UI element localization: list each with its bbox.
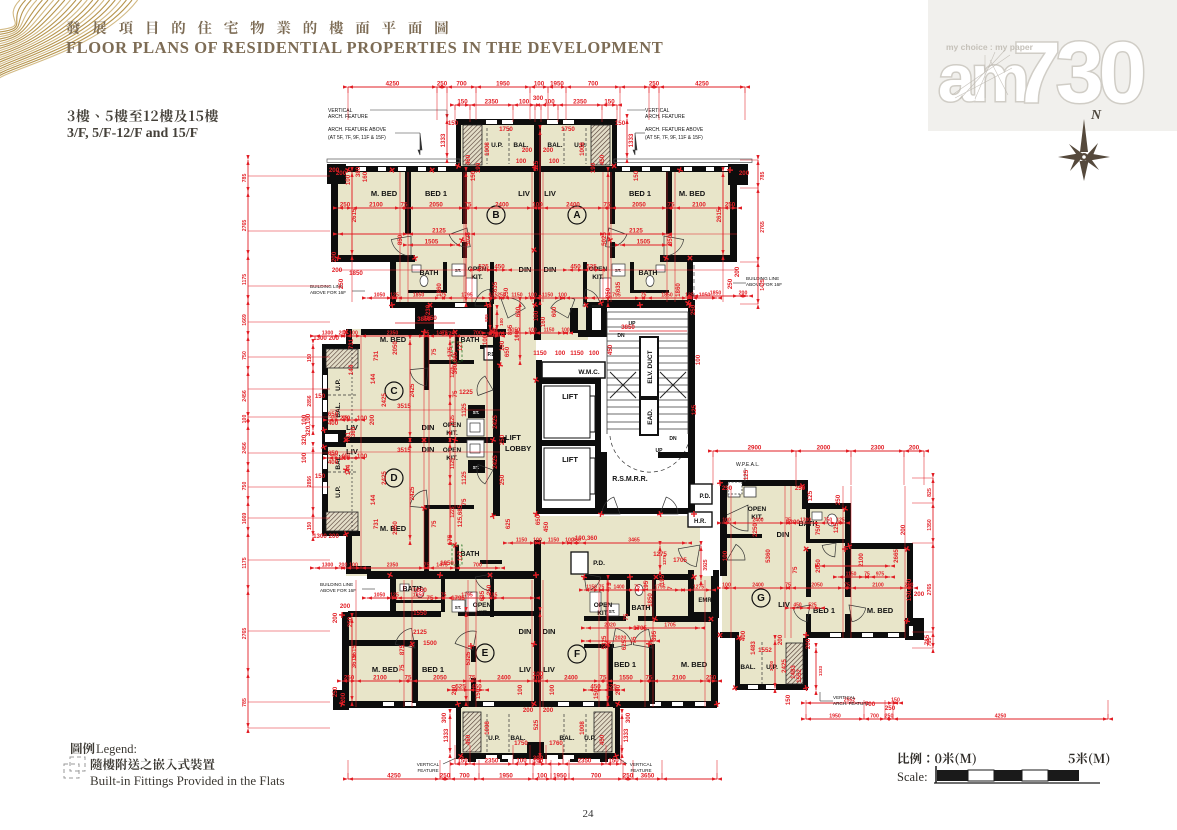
svg-text:380: 380 <box>355 166 362 177</box>
svg-text:125: 125 <box>807 490 814 501</box>
svg-text:150: 150 <box>315 473 326 480</box>
svg-text:400: 400 <box>328 459 339 466</box>
svg-text:FLOOR PLANS OF RESIDENTIAL PRO: FLOOR PLANS OF RESIDENTIAL PROPERTIES IN… <box>66 38 663 57</box>
svg-text:731: 731 <box>373 518 380 529</box>
svg-text:2350: 2350 <box>387 563 399 569</box>
svg-text:125: 125 <box>390 593 399 599</box>
svg-text:100: 100 <box>528 293 537 299</box>
svg-text:EMR: EMR <box>698 598 712 604</box>
svg-text:1125: 1125 <box>461 403 468 417</box>
svg-text:M. BED: M. BED <box>681 660 708 669</box>
svg-text:450: 450 <box>543 521 550 532</box>
svg-text:1008: 1008 <box>484 142 491 156</box>
svg-text:2125: 2125 <box>432 228 446 235</box>
svg-text:1300: 1300 <box>800 518 811 524</box>
svg-text:1950: 1950 <box>553 773 567 780</box>
svg-text:(AT 5F, 7F, 9F, 11F & 15F): (AT 5F, 7F, 9F, 11F & 15F) <box>328 135 386 141</box>
svg-text:100: 100 <box>537 773 548 780</box>
svg-text:200: 200 <box>734 266 741 277</box>
svg-text:360,685: 360,685 <box>452 351 459 374</box>
svg-text:200: 200 <box>914 591 925 598</box>
svg-text:1950: 1950 <box>499 773 513 780</box>
svg-text:100: 100 <box>516 758 527 765</box>
svg-text:1552: 1552 <box>758 647 772 654</box>
svg-text:200: 200 <box>615 684 622 695</box>
svg-text:975: 975 <box>876 572 885 578</box>
svg-text:600: 600 <box>551 306 558 317</box>
svg-text:2000: 2000 <box>817 445 831 452</box>
svg-text:OPEN: OPEN <box>594 602 613 609</box>
svg-text:ABOVE FOR 16F: ABOVE FOR 16F <box>310 290 346 295</box>
svg-text:200: 200 <box>339 563 348 569</box>
svg-text:75: 75 <box>844 583 850 589</box>
svg-text:625: 625 <box>621 639 628 650</box>
svg-text:ELV. DUCT: ELV. DUCT <box>647 350 654 383</box>
svg-text:FEATURE: FEATURE <box>417 768 438 773</box>
svg-text:2900: 2900 <box>748 445 762 452</box>
svg-text:200: 200 <box>340 692 347 703</box>
svg-text:200: 200 <box>369 414 376 425</box>
svg-text:1300 200: 1300 200 <box>313 533 339 540</box>
svg-text:300: 300 <box>625 712 632 723</box>
svg-text:1850: 1850 <box>413 293 425 299</box>
svg-text:731: 731 <box>373 350 380 361</box>
svg-text:750: 750 <box>242 482 248 491</box>
svg-text:DIN: DIN <box>422 445 435 454</box>
svg-text:75: 75 <box>431 520 438 527</box>
svg-text:100: 100 <box>722 518 731 524</box>
svg-text:200: 200 <box>340 415 351 422</box>
svg-text:LIV: LIV <box>518 189 530 198</box>
svg-text:W.M.C.: W.M.C. <box>578 369 599 376</box>
svg-text:3850: 3850 <box>621 324 635 331</box>
svg-text:2350: 2350 <box>485 758 499 765</box>
svg-text:2425: 2425 <box>381 393 388 407</box>
svg-text:150: 150 <box>315 393 326 400</box>
svg-text:2100: 2100 <box>373 675 387 682</box>
svg-text:650: 650 <box>504 346 511 357</box>
svg-text:KIT.: KIT. <box>471 274 483 281</box>
svg-text:2100: 2100 <box>872 583 884 589</box>
svg-text:5325: 5325 <box>465 651 472 665</box>
svg-text:127: 127 <box>457 550 464 561</box>
svg-text:KIT.: KIT. <box>446 430 458 437</box>
svg-text:LIV: LIV <box>543 665 555 674</box>
svg-text:144: 144 <box>345 464 352 475</box>
svg-text:DIN: DIN <box>543 627 556 636</box>
svg-text:700: 700 <box>459 773 470 780</box>
svg-text:Scale:: Scale: <box>897 770 928 784</box>
svg-text:2400: 2400 <box>752 518 763 524</box>
svg-text:150: 150 <box>470 170 477 181</box>
svg-text:525: 525 <box>586 264 597 271</box>
svg-text:650: 650 <box>535 514 542 525</box>
svg-text:G: G <box>757 593 765 604</box>
svg-text:3925: 3925 <box>703 559 709 570</box>
svg-text:250: 250 <box>503 287 510 298</box>
svg-text:525: 525 <box>808 603 817 609</box>
svg-text:2050: 2050 <box>433 675 447 682</box>
svg-text:ABOVE FOR 16F: ABOVE FOR 16F <box>320 588 356 593</box>
svg-text:3615: 3615 <box>351 645 358 659</box>
svg-text:1150: 1150 <box>548 538 559 544</box>
svg-text:2425: 2425 <box>409 383 416 397</box>
svg-text:BATH: BATH <box>639 270 658 277</box>
svg-text:750: 750 <box>815 524 822 535</box>
svg-text:250: 250 <box>725 202 736 209</box>
svg-text:OPEN: OPEN <box>443 447 462 454</box>
svg-text:24: 24 <box>583 808 595 820</box>
svg-text:250: 250 <box>340 202 351 209</box>
svg-text:ST.: ST. <box>609 609 616 614</box>
svg-text:1008: 1008 <box>579 142 586 156</box>
svg-text:200: 200 <box>522 147 533 154</box>
svg-text:2350: 2350 <box>485 99 499 106</box>
svg-text:250: 250 <box>835 494 842 505</box>
svg-text:1550: 1550 <box>619 675 633 682</box>
svg-text:75: 75 <box>401 202 408 209</box>
svg-text:100: 100 <box>695 354 702 365</box>
svg-text:A: A <box>573 210 580 221</box>
svg-text:100: 100 <box>589 350 600 357</box>
svg-text:2425: 2425 <box>781 659 788 673</box>
svg-text:1150: 1150 <box>544 328 555 334</box>
svg-text:VERTICAL: VERTICAL <box>833 695 856 700</box>
svg-text:2100: 2100 <box>369 202 383 209</box>
svg-text:785: 785 <box>760 172 766 181</box>
svg-text:100: 100 <box>301 452 308 463</box>
svg-text:100: 100 <box>544 99 555 106</box>
svg-text:125: 125 <box>833 522 840 533</box>
svg-text:LIFT: LIFT <box>562 392 578 401</box>
svg-text:1008: 1008 <box>484 721 491 735</box>
svg-text:75: 75 <box>606 582 613 589</box>
svg-text:1550: 1550 <box>413 610 427 617</box>
svg-text:100,360: 100,360 <box>575 535 598 542</box>
svg-text:F: F <box>574 649 580 660</box>
svg-text:75: 75 <box>634 585 640 591</box>
svg-text:2100: 2100 <box>672 675 686 682</box>
svg-text:150: 150 <box>457 758 468 765</box>
svg-text:KIT.: KIT. <box>592 274 604 281</box>
svg-text:1050: 1050 <box>699 293 711 299</box>
svg-text:2050: 2050 <box>815 559 822 573</box>
svg-text:3515: 3515 <box>397 403 411 410</box>
svg-text:700: 700 <box>591 773 602 780</box>
svg-text:B: B <box>492 210 499 221</box>
svg-text:395: 395 <box>651 630 658 641</box>
svg-text:75: 75 <box>631 636 638 643</box>
svg-text:DIN: DIN <box>422 423 435 432</box>
svg-text:DIN: DIN <box>777 530 790 539</box>
svg-text:1750: 1750 <box>514 740 528 747</box>
svg-text:200: 200 <box>909 445 920 452</box>
svg-text:144: 144 <box>370 494 377 505</box>
svg-text:400: 400 <box>740 630 747 641</box>
svg-text:BED 1: BED 1 <box>425 189 447 198</box>
svg-text:250: 250 <box>623 773 634 780</box>
svg-text:100: 100 <box>349 563 358 569</box>
svg-text:75: 75 <box>668 202 675 209</box>
svg-text:200: 200 <box>805 638 812 649</box>
svg-text:200: 200 <box>739 291 748 297</box>
svg-text:700: 700 <box>492 331 503 338</box>
svg-text:650: 650 <box>328 450 339 457</box>
svg-text:Built-in Fittings Provided in: Built-in Fittings Provided in the Flats <box>90 773 285 788</box>
svg-text:2400: 2400 <box>752 583 764 589</box>
svg-text:150: 150 <box>593 688 600 699</box>
svg-text:400: 400 <box>328 420 339 427</box>
svg-text:LIFT: LIFT <box>505 433 521 442</box>
svg-text:2050: 2050 <box>429 202 443 209</box>
svg-text:2765: 2765 <box>242 220 248 232</box>
svg-text:75: 75 <box>399 664 406 671</box>
svg-text:1008: 1008 <box>579 721 586 735</box>
svg-text:2856: 2856 <box>307 395 313 406</box>
svg-text:DIN: DIN <box>544 265 557 274</box>
svg-text:100: 100 <box>482 334 489 345</box>
svg-text:150,150: 150,150 <box>906 578 913 601</box>
svg-text:1150: 1150 <box>542 293 553 299</box>
svg-text:250: 250 <box>690 304 697 315</box>
svg-text:250: 250 <box>499 434 506 445</box>
svg-text:850: 850 <box>397 234 404 245</box>
svg-text:D: D <box>390 473 397 484</box>
svg-text:200: 200 <box>777 634 784 645</box>
svg-text:75: 75 <box>864 572 870 578</box>
svg-text:1333: 1333 <box>443 728 450 742</box>
svg-text:1500: 1500 <box>423 640 437 647</box>
svg-text:BED 1: BED 1 <box>422 665 444 674</box>
svg-text:1150: 1150 <box>533 350 547 357</box>
svg-text:U.P.: U.P. <box>488 735 500 742</box>
svg-text:E: E <box>482 648 489 659</box>
svg-text:KIT.: KIT. <box>476 610 488 617</box>
svg-text:100: 100 <box>533 671 544 678</box>
svg-text:200: 200 <box>900 524 907 535</box>
svg-text:1860: 1860 <box>436 283 443 297</box>
svg-text:100: 100 <box>558 293 567 299</box>
svg-text:ARCH. FEATURE: ARCH. FEATURE <box>645 114 686 120</box>
svg-text:2050: 2050 <box>392 521 399 535</box>
svg-text:1505: 1505 <box>425 239 439 246</box>
svg-text:1050: 1050 <box>374 593 386 599</box>
svg-text:5025: 5025 <box>465 232 472 246</box>
svg-text:150: 150 <box>633 170 640 181</box>
svg-text:1333: 1333 <box>818 665 823 676</box>
svg-text:5025: 5025 <box>601 232 608 246</box>
svg-text:125: 125 <box>691 404 698 415</box>
svg-text:150: 150 <box>785 694 792 705</box>
svg-text:75: 75 <box>441 593 447 599</box>
svg-text:150: 150 <box>615 120 626 127</box>
svg-text:250: 250 <box>347 616 354 627</box>
svg-text:700: 700 <box>870 714 879 720</box>
svg-text:LIV: LIV <box>519 665 531 674</box>
svg-text:750: 750 <box>824 518 833 524</box>
svg-text:525: 525 <box>533 160 540 171</box>
svg-text:ARCH. FEATURE: ARCH. FEATURE <box>328 114 369 120</box>
svg-text:635: 635 <box>492 281 499 292</box>
svg-text:R.S.M.R.R.: R.S.M.R.R. <box>612 476 647 483</box>
svg-text:2300: 2300 <box>871 445 885 452</box>
svg-text:700: 700 <box>588 81 599 88</box>
svg-text:1150: 1150 <box>570 350 584 357</box>
svg-text:195: 195 <box>659 574 666 585</box>
svg-text:230: 230 <box>425 304 432 315</box>
svg-text:160: 160 <box>540 316 547 327</box>
svg-text:ST.: ST. <box>615 268 622 273</box>
svg-text:2615: 2615 <box>716 208 723 222</box>
svg-text:1150: 1150 <box>586 585 597 591</box>
svg-text:1125: 1125 <box>461 471 468 485</box>
svg-text:1669: 1669 <box>242 314 248 326</box>
svg-text:1275: 1275 <box>693 585 704 591</box>
svg-text:100: 100 <box>561 328 570 334</box>
svg-text:VERTICAL: VERTICAL <box>417 762 440 767</box>
svg-text:625: 625 <box>505 518 512 529</box>
svg-text:1750: 1750 <box>499 126 513 133</box>
svg-text:LOBBY: LOBBY <box>505 444 531 453</box>
svg-text:700: 700 <box>865 701 876 708</box>
svg-text:2856: 2856 <box>307 476 313 487</box>
svg-text:2765: 2765 <box>927 584 933 596</box>
svg-text:250: 250 <box>795 485 806 492</box>
svg-text:635: 635 <box>479 590 486 601</box>
svg-text:100: 100 <box>722 583 731 589</box>
svg-text:75: 75 <box>604 202 611 209</box>
svg-text:BATH: BATH <box>420 270 439 277</box>
svg-text:75: 75 <box>785 583 791 589</box>
svg-text:250: 250 <box>605 287 612 298</box>
svg-text:785: 785 <box>242 174 248 183</box>
svg-text:2456: 2456 <box>242 442 248 454</box>
svg-text:450: 450 <box>607 344 614 355</box>
svg-text:M. BED: M. BED <box>679 189 706 198</box>
svg-text:200: 200 <box>340 603 351 610</box>
svg-text:my choice : my paper: my choice : my paper <box>946 42 1034 52</box>
svg-text:175: 175 <box>447 534 454 545</box>
svg-text:1475: 1475 <box>441 331 455 338</box>
svg-text:320,100: 320,100 <box>305 413 312 436</box>
svg-text:200: 200 <box>451 684 458 695</box>
svg-text:1225: 1225 <box>459 389 473 396</box>
svg-text:100: 100 <box>349 331 358 337</box>
svg-text:200: 200 <box>331 251 338 262</box>
svg-text:ARCH. FEATURE ABOVE: ARCH. FEATURE ABOVE <box>645 127 704 133</box>
svg-text:250: 250 <box>885 714 894 720</box>
svg-text:1950: 1950 <box>550 81 564 88</box>
svg-text:250: 250 <box>332 686 339 697</box>
svg-text:100: 100 <box>345 174 352 185</box>
svg-text:1483: 1483 <box>750 641 757 655</box>
svg-text:250: 250 <box>499 474 506 485</box>
svg-text:150: 150 <box>604 99 615 106</box>
svg-text:1860: 1860 <box>675 283 682 297</box>
svg-text:4250: 4250 <box>386 81 400 88</box>
svg-text:1850: 1850 <box>710 291 722 297</box>
svg-text:250: 250 <box>440 773 451 780</box>
svg-text:U.P.: U.P. <box>335 379 342 391</box>
svg-text:100: 100 <box>549 684 556 695</box>
svg-text:4250: 4250 <box>695 81 709 88</box>
svg-text:100: 100 <box>533 538 542 544</box>
svg-text:125: 125 <box>836 518 845 524</box>
svg-text:BED 1: BED 1 <box>629 189 651 198</box>
svg-text:100: 100 <box>514 330 521 341</box>
svg-text:731: 731 <box>348 338 355 349</box>
svg-text:7: 7 <box>667 586 674 590</box>
svg-text:450: 450 <box>793 603 802 609</box>
svg-text:DN: DN <box>617 333 625 339</box>
svg-text:150: 150 <box>307 522 313 531</box>
svg-text:200: 200 <box>523 707 534 714</box>
svg-text:1669: 1669 <box>242 513 248 525</box>
svg-text:2425: 2425 <box>381 471 388 485</box>
svg-text:825: 825 <box>927 488 933 497</box>
svg-text:200: 200 <box>340 455 351 462</box>
svg-text:785: 785 <box>242 698 248 707</box>
svg-text:M. BED: M. BED <box>867 606 894 615</box>
svg-text:450: 450 <box>465 154 472 165</box>
svg-text:1150: 1150 <box>516 538 527 544</box>
svg-text:635: 635 <box>615 281 622 292</box>
svg-text:FEATURE: FEATURE <box>630 768 651 773</box>
svg-text:1175: 1175 <box>242 274 248 285</box>
svg-text:BAL.: BAL. <box>740 664 755 671</box>
svg-text:3650: 3650 <box>641 773 655 780</box>
svg-text:1795: 1795 <box>461 293 473 299</box>
svg-text:U.P.: U.P. <box>491 142 503 149</box>
svg-text:EAD.: EAD. <box>647 409 654 425</box>
svg-text:DN: DN <box>669 436 677 442</box>
svg-text:100: 100 <box>499 318 504 326</box>
svg-text:805: 805 <box>507 324 514 335</box>
svg-text:100: 100 <box>532 202 543 209</box>
svg-text:ST.: ST. <box>473 465 480 470</box>
svg-text:C: C <box>390 386 397 397</box>
svg-text:200: 200 <box>739 170 750 177</box>
svg-text:2100: 2100 <box>858 553 865 567</box>
svg-text:1705: 1705 <box>633 625 647 632</box>
svg-text:1350: 1350 <box>927 519 933 531</box>
svg-text:1705: 1705 <box>673 557 687 564</box>
svg-text:100: 100 <box>357 453 368 460</box>
svg-text:U.P.: U.P. <box>584 735 596 742</box>
svg-text:525: 525 <box>478 264 489 271</box>
svg-text:2050: 2050 <box>811 583 823 589</box>
svg-text:150: 150 <box>457 99 468 106</box>
svg-text:200: 200 <box>332 612 339 623</box>
svg-text:3515: 3515 <box>397 447 411 454</box>
svg-text:3465: 3465 <box>628 538 640 544</box>
svg-text:1425: 1425 <box>760 279 766 291</box>
svg-text:75: 75 <box>599 585 605 591</box>
svg-text:450: 450 <box>494 264 505 271</box>
svg-text:1300: 1300 <box>322 563 334 569</box>
svg-text:BUILDING LINE: BUILDING LINE <box>320 582 353 587</box>
svg-text:1400: 1400 <box>613 585 624 591</box>
svg-text:75: 75 <box>452 390 459 397</box>
svg-text:75: 75 <box>405 675 412 682</box>
svg-text:4250: 4250 <box>387 773 401 780</box>
svg-text:100: 100 <box>549 158 560 165</box>
svg-text:75: 75 <box>431 348 438 355</box>
svg-text:2250: 2250 <box>752 523 759 537</box>
svg-text:H.R.: H.R. <box>694 519 706 525</box>
svg-text:450: 450 <box>570 264 581 271</box>
svg-text:700: 700 <box>473 331 482 337</box>
